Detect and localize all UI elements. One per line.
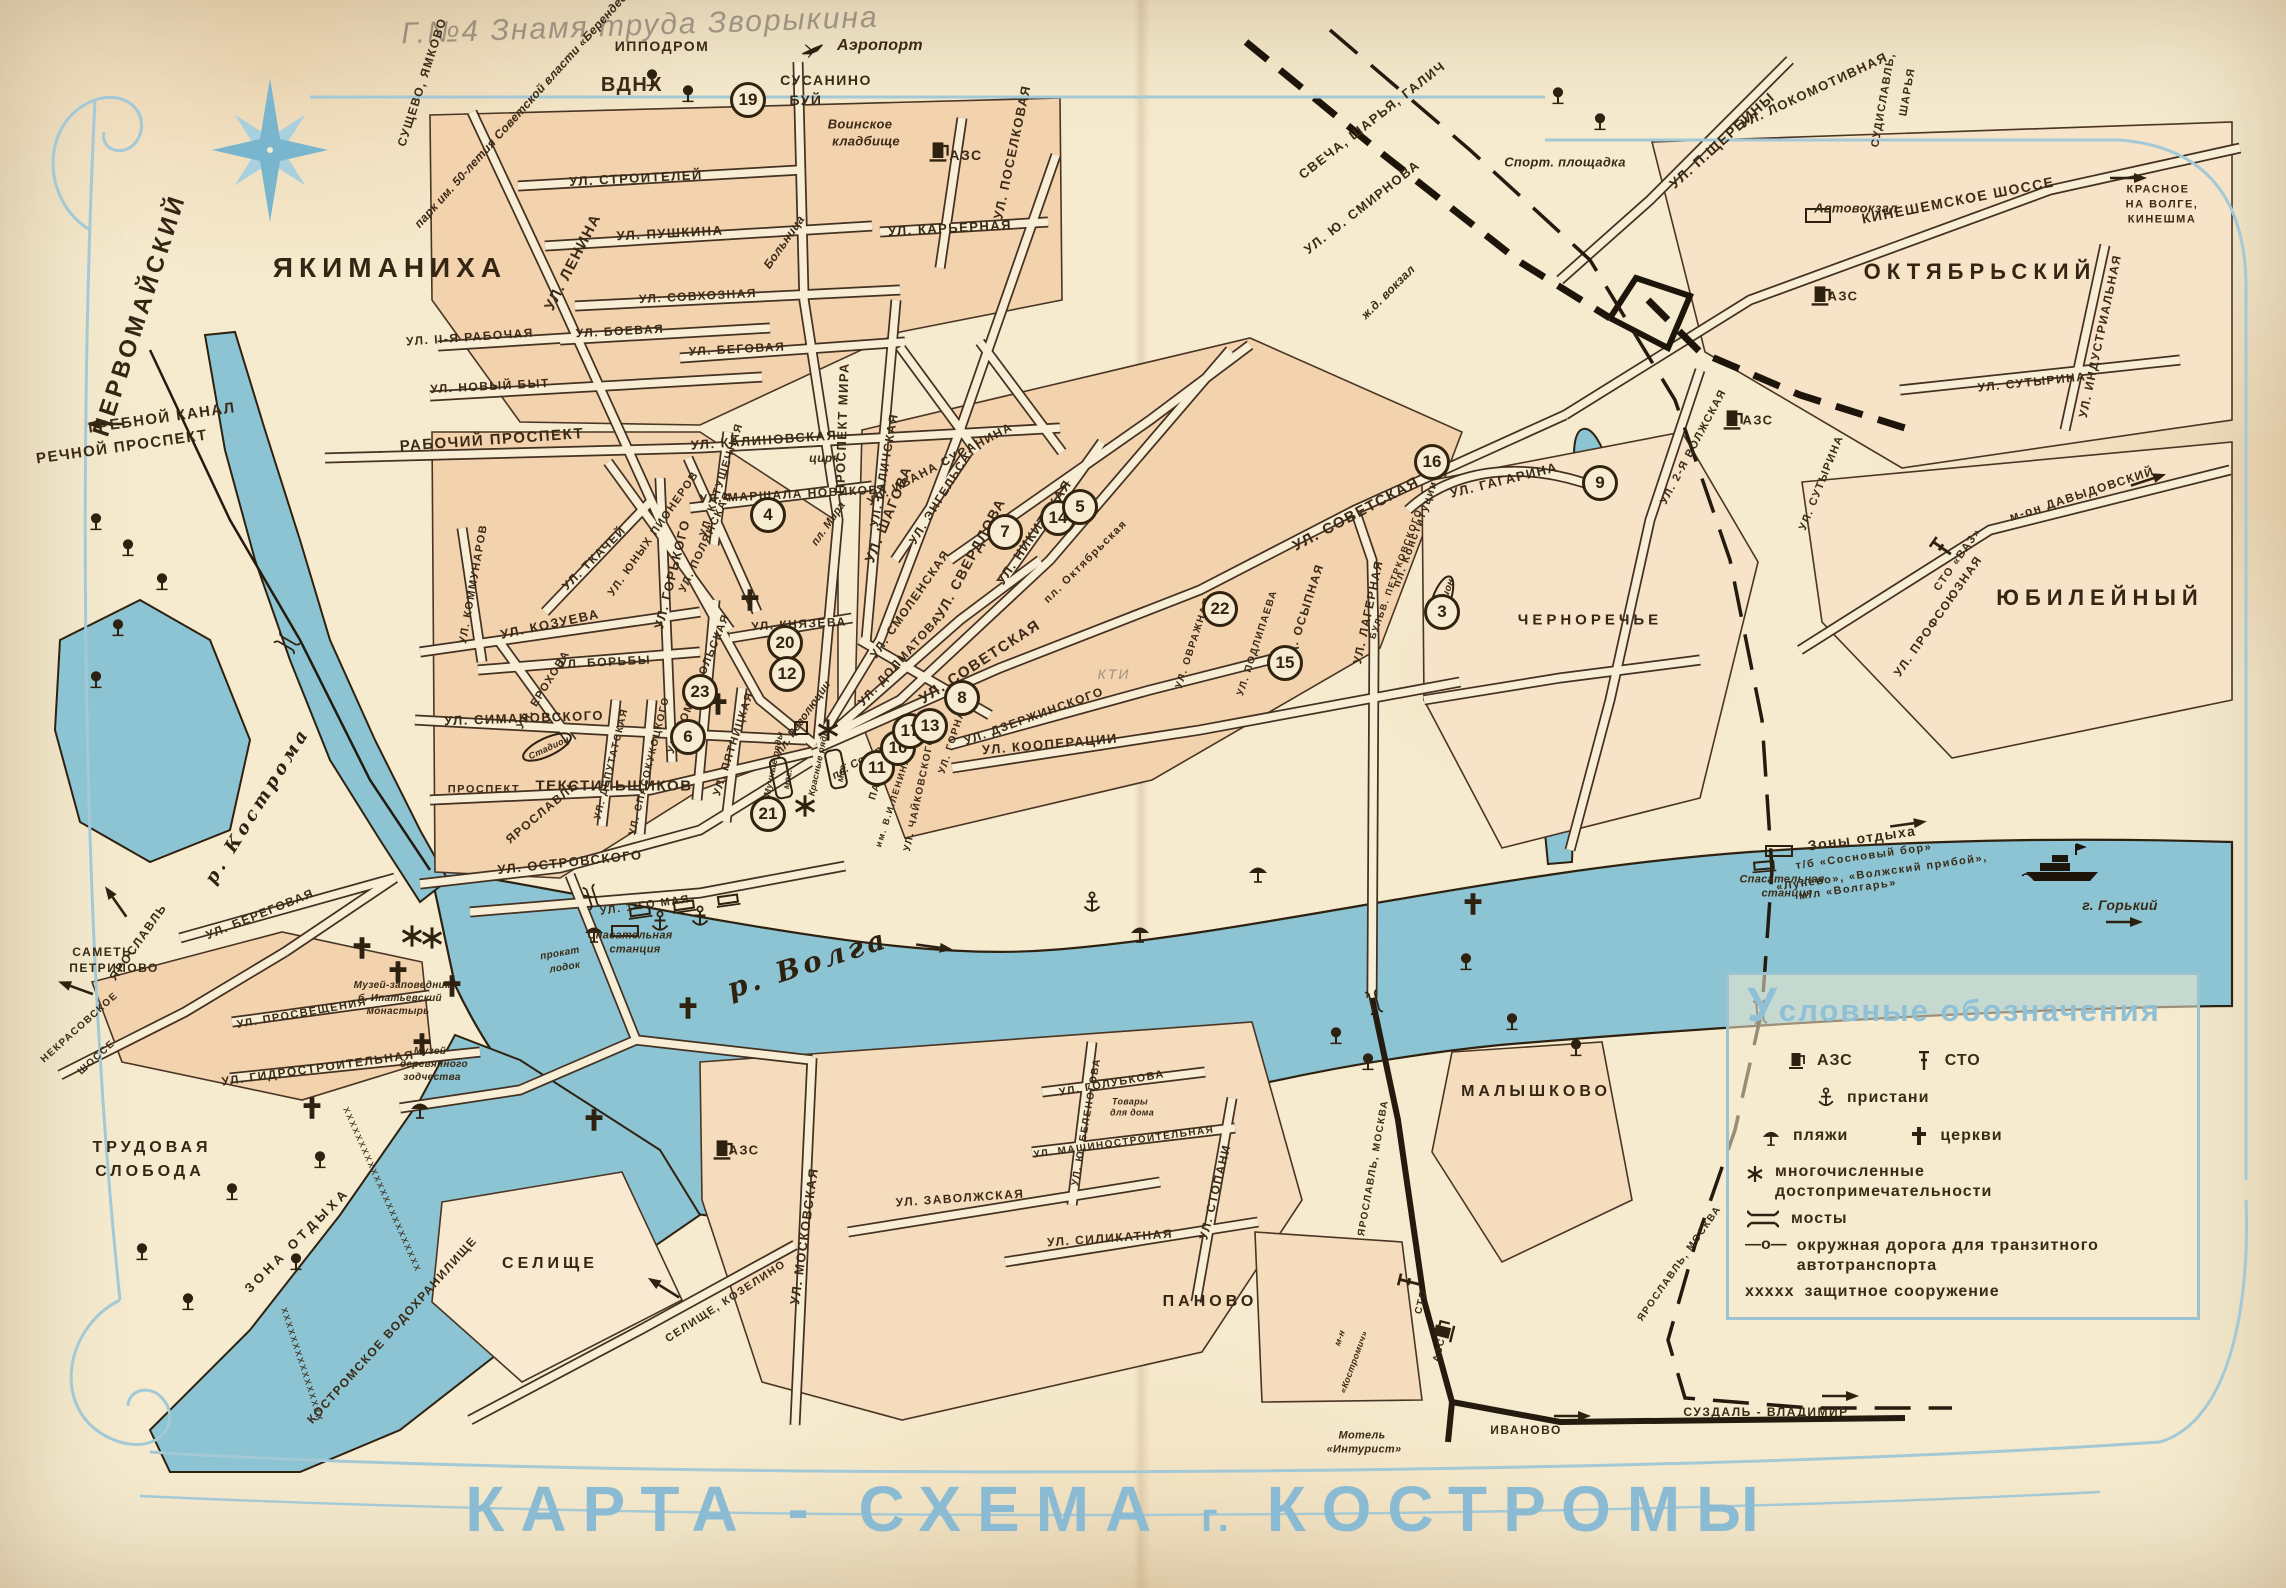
map-label: ОКТЯБРЬСКИЙ <box>1864 261 2097 283</box>
anchor-icon <box>1085 892 1100 911</box>
arrow-icon <box>1822 1391 1859 1401</box>
tree-icon <box>682 85 693 101</box>
map-label: ЯКИМАНИХА <box>273 254 507 282</box>
map-label: КТИ <box>1098 667 1131 681</box>
tree-icon <box>122 539 133 555</box>
poi-number-19: 19 <box>730 82 766 118</box>
star-icon <box>796 795 815 816</box>
arrow-icon <box>101 884 130 920</box>
x-line-icon: xxxxx <box>1745 1283 1795 1301</box>
map-label: Мотель <box>1339 1431 1386 1442</box>
legend-item-label: пристани <box>1847 1089 1929 1107</box>
poi-number-7: 7 <box>987 514 1023 550</box>
tree-icon <box>314 1151 325 1167</box>
poi-number-8: 8 <box>944 680 980 716</box>
poi-number-5: 5 <box>1062 489 1098 525</box>
map-label: САМЕТЬ- <box>72 946 137 958</box>
map-title-part1: КАРТА - СХЕМА <box>465 1473 1167 1545</box>
legend-box: Условные обозначения АЗС СТО пристани пл… <box>1726 972 2200 1320</box>
map-title-part2: г. <box>1201 1496 1233 1540</box>
map-label: ИППОДРОМ <box>615 39 710 53</box>
poi-number-13: 13 <box>912 708 948 744</box>
map-label: АЗС <box>1742 414 1773 427</box>
tree-icon <box>1552 87 1563 103</box>
legend-title: Условные обозначения <box>1747 987 2181 1029</box>
arrow-icon <box>56 977 94 999</box>
map-label: АЗС <box>1827 290 1858 303</box>
poi-number-21: 21 <box>750 796 786 832</box>
map-label: Аэропорт <box>837 38 923 54</box>
umbrella-icon <box>1249 868 1267 883</box>
map-label: для дома <box>1110 1109 1154 1118</box>
map-label: БУЙ <box>790 93 823 107</box>
poi-number-12: 12 <box>769 656 805 692</box>
map-label: «Интурист» <box>1327 1445 1402 1456</box>
map-label: Воинское <box>828 118 893 131</box>
map-label: зодчества <box>403 1073 460 1083</box>
map-label: Музей <box>414 1047 446 1057</box>
map-label: деревянного <box>400 1060 468 1070</box>
map-label: г. Горький <box>2082 898 2158 912</box>
legend-item-label: АЗС <box>1817 1052 1853 1070</box>
map-title: КАРТА - СХЕМА г. КОСТРОМЫ <box>340 1472 1900 1546</box>
legend-item-label: защитное сооружение <box>1805 1283 2000 1301</box>
plane-icon <box>802 45 822 58</box>
cross-icon <box>304 1097 321 1119</box>
tree-icon <box>136 1243 147 1259</box>
map-label: КИНЕШМА <box>2128 215 2197 226</box>
star-icon <box>403 925 422 946</box>
map-label: АЗС <box>728 1144 759 1157</box>
poi-number-15: 15 <box>1267 645 1303 681</box>
map-label: Спасательная <box>587 931 672 942</box>
legend-item-label: СТО <box>1945 1052 1981 1070</box>
map-label: ПАНОВО <box>1163 1294 1258 1310</box>
tree-icon <box>226 1183 237 1199</box>
map-label: СУЗДАЛЬ - ВЛАДИМИР <box>1683 1406 1848 1418</box>
asterisk-icon <box>1745 1164 1765 1184</box>
map-label: монастырь <box>367 1007 430 1017</box>
tree-icon <box>1594 113 1605 129</box>
pump-icon <box>1785 1050 1807 1072</box>
poi-number-3: 3 <box>1424 594 1460 630</box>
map-label: СУСАНИНО <box>780 73 872 87</box>
poi-number-22: 22 <box>1202 591 1238 627</box>
pump-icon <box>1724 410 1742 428</box>
map-label: ВДНХ <box>601 75 663 95</box>
legend-item-label: многочисленные достопримечательности <box>1775 1162 2105 1202</box>
map-label: АЗС <box>949 148 982 162</box>
poi-number-4: 4 <box>750 497 786 533</box>
poi-number-23: 23 <box>682 674 718 710</box>
boat-icon <box>716 894 741 907</box>
map-label: ИВАНОВО <box>1490 1424 1562 1436</box>
tree-icon <box>90 513 101 529</box>
legend-item-label: пляжи <box>1793 1127 1848 1145</box>
sto-icon <box>1913 1050 1935 1072</box>
map-label: Товары <box>1112 1098 1148 1107</box>
compass-rose <box>199 78 340 222</box>
map-label: ЧЕРНОРЕЧЬЕ <box>1518 613 1662 628</box>
map-label: ПРОСПЕКТ <box>448 785 521 796</box>
cross-icon <box>1908 1125 1930 1147</box>
map-title-part3: КОСТРОМЫ <box>1267 1473 1775 1545</box>
map-label: Спорт. площадка <box>1504 156 1626 169</box>
map-canvas: Г.№4 Знамя труда ЗворыкинаПЕРВОМАЙСКИЙГР… <box>0 0 2286 1588</box>
poi-number-9: 9 <box>1582 465 1618 501</box>
umbrella-icon <box>1759 1124 1783 1148</box>
legend-item-label: мосты <box>1791 1210 1848 1228</box>
map-label: МАЛЫШКОВО <box>1461 1084 1611 1100</box>
map-label: цирк <box>809 452 839 464</box>
map-label: б. Ипатьевский <box>358 994 442 1004</box>
tree-icon <box>1362 1053 1373 1069</box>
ring-road-icon: —о— <box>1745 1236 1787 1254</box>
legend-item-label: церкви <box>1940 1127 2002 1145</box>
poi-number-6: 6 <box>670 719 706 755</box>
map-label: станция <box>609 945 660 956</box>
map-label: кладбище <box>832 135 900 148</box>
map-label: СЛОБОДА <box>95 1164 205 1180</box>
map-label: КРАСНОЕ <box>2126 185 2189 196</box>
map-label: ТРУДОВАЯ <box>92 1140 211 1156</box>
map-label: ПЕТРИЛОВО <box>69 962 159 974</box>
anchor-icon <box>1815 1086 1837 1110</box>
star-icon <box>423 927 442 948</box>
poi-number-16: 16 <box>1414 444 1450 480</box>
tree-icon <box>156 573 167 589</box>
legend-item-label: окружная дорога для транзитного автотран… <box>1797 1236 2157 1276</box>
map-label: СЕЛИЩЕ <box>502 1256 598 1272</box>
map-base-art <box>0 0 2286 1588</box>
map-label: Музей-заповедник <box>354 981 451 991</box>
map-label: ЮБИЛЕЙНЫЙ <box>1996 587 2203 609</box>
bridge-icon <box>1745 1209 1781 1229</box>
map-label: НА ВОЛГЕ, <box>2126 200 2199 211</box>
tree-icon <box>182 1293 193 1309</box>
